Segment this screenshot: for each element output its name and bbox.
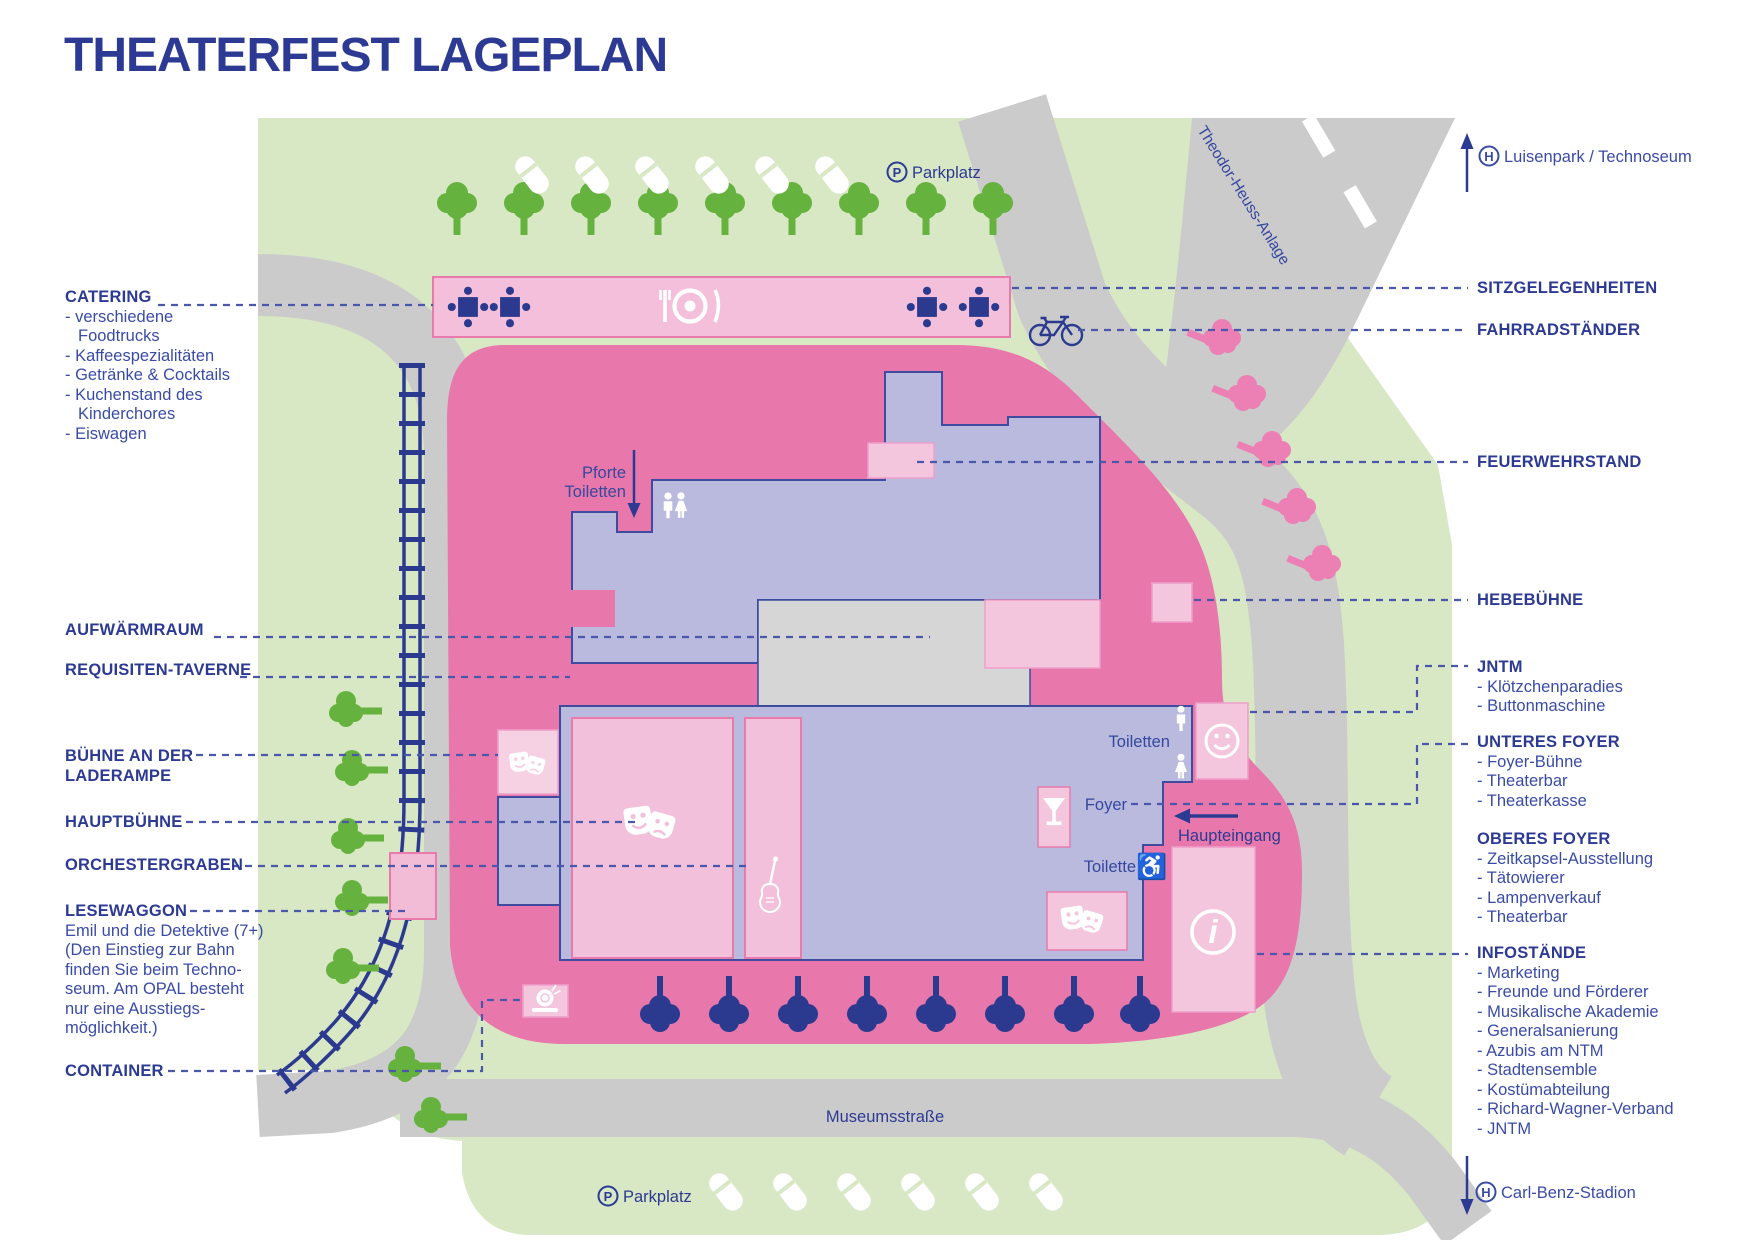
lesewaggon-title: LESEWAGGON: [65, 902, 295, 922]
oberes-foyer-item: - Zeitkapsel-Ausstellung: [1477, 850, 1747, 870]
jntm-title: JNTM: [1477, 658, 1747, 678]
svg-text:P: P: [893, 165, 902, 180]
lesewaggon-line: (Den Einstieg zur Bahn: [65, 941, 295, 961]
box-jntm-smiley: [1196, 703, 1248, 779]
infostaende-item: - Azubis am NTM: [1477, 1042, 1747, 1062]
wheelchair-icon: ♿: [1136, 852, 1167, 881]
toiletten-label: Toiletten: [1109, 733, 1170, 751]
infostaende-item: - Generalsanierung: [1477, 1022, 1747, 1042]
oberes-foyer-item: - Tätowierer: [1477, 869, 1747, 889]
feuerwehrstand-callout: FEUERWEHRSTAND: [1477, 453, 1641, 473]
info-glyph: i: [1208, 913, 1218, 950]
lesewaggon-line: möglichkeit.): [65, 1019, 295, 1039]
hebebuehne-callout: HEBEBÜHNE: [1477, 591, 1583, 611]
h-badge-luisenpark: H: [1480, 147, 1499, 166]
oberes-foyer-title: OBERES FOYER: [1477, 830, 1747, 850]
infostaende-item: - Freunde und Förderer: [1477, 983, 1747, 1003]
fahrradstaender-callout: FAHRRADSTÄNDER: [1477, 321, 1640, 341]
catering-title: CATERING: [65, 288, 241, 308]
toilette-label: Toilette: [1084, 858, 1136, 876]
building-notch: [571, 590, 615, 627]
haupteingang-label: Haupteingang: [1178, 827, 1281, 845]
pforte-label-line2: Toiletten: [565, 483, 626, 501]
infostaende-item: - Musikalische Akademie: [1477, 1003, 1747, 1023]
catering-item: - Getränke & Cocktails: [65, 366, 241, 386]
jntm-item: - Buttonmaschine: [1477, 697, 1747, 717]
unteres-foyer-title: UNTERES FOYER: [1477, 733, 1747, 753]
unteres-foyer-item: - Theaterbar: [1477, 772, 1747, 792]
box-feuerwehrstand: [868, 443, 934, 478]
catering-item: - Eiswagen: [65, 425, 241, 445]
requisiten-taverne-callout: REQUISITEN-TAVERNE: [65, 661, 251, 681]
aufwaermraum-callout: AUFWÄRMRAUM: [65, 621, 204, 641]
parkplatz-north-label: Parkplatz: [912, 164, 981, 182]
luisenpark-arrow-icon: [1461, 133, 1474, 192]
catering-item: - verschiedene Foodtrucks: [65, 308, 241, 347]
room-highlight: [985, 600, 1100, 668]
jntm-item: - Klötzchenparadies: [1477, 678, 1747, 698]
container-callout: CONTAINER: [65, 1062, 164, 1082]
parkplatz-south-label: Parkplatz: [623, 1188, 692, 1206]
buehne-laderampe-callout: BÜHNE AN DER LADERAMPE: [65, 747, 215, 786]
oberes-foyer-item: - Theaterbar: [1477, 908, 1747, 928]
orchestergraben-callout: ORCHESTERGRABEN: [65, 856, 243, 876]
sitzgelegenheiten-callout: SITZGELEGENHEITEN: [1477, 279, 1657, 299]
unteres-foyer-item: - Theaterkasse: [1477, 792, 1747, 812]
svg-text:P: P: [604, 1189, 613, 1204]
infostaende-item: - Stadtensemble: [1477, 1061, 1747, 1081]
lesewaggon-callout: LESEWAGGON Emil und die Detektive (7+) (…: [65, 902, 295, 1039]
catering-callout: CATERING - verschiedene Foodtrucks - Kaf…: [65, 288, 241, 444]
infostaende-item: - Richard-Wagner-Verband: [1477, 1100, 1747, 1120]
jntm-callout: JNTM - Klötzchenparadies - Buttonmaschin…: [1477, 658, 1747, 717]
page-title: THEATERFEST LAGEPLAN: [64, 28, 667, 83]
building-annex: [498, 797, 560, 905]
lesewaggon-line: seum. Am OPAL besteht: [65, 980, 295, 1000]
svg-text:H: H: [1484, 149, 1493, 164]
infostaende-callout: INFOSTÄNDE - Marketing - Freunde und För…: [1477, 944, 1747, 1139]
infostaende-item: - Kostümabteilung: [1477, 1081, 1747, 1101]
catering-item: - Kuchenstand des Kinderchores: [65, 386, 241, 425]
museumsstrasse-label: Museumsstraße: [826, 1108, 944, 1126]
room-hauptbuehne: [572, 718, 733, 958]
oberes-foyer-item: - Lampenverkauf: [1477, 889, 1747, 909]
luisenpark-label: Luisenpark / Technoseum: [1504, 148, 1692, 166]
infostaende-title: INFOSTÄNDE: [1477, 944, 1747, 964]
lesewaggon-line: Emil und die Detektive (7+): [65, 922, 295, 942]
lesewaggon-line: finden Sie beim Techno-: [65, 961, 295, 981]
carl-benz-label: Carl-Benz-Stadion: [1501, 1184, 1636, 1202]
catering-item: - Kaffeespezialitäten: [65, 347, 241, 367]
catering-bar: [433, 277, 1010, 337]
infostaende-item: - JNTM: [1477, 1120, 1747, 1140]
hauptbuehne-callout: HAUPTBÜHNE: [65, 813, 183, 833]
unteres-foyer-item: - Foyer-Bühne: [1477, 753, 1747, 773]
foyer-label: Foyer: [1085, 796, 1128, 814]
room-orchestergraben: [745, 718, 801, 958]
infostaende-item: - Marketing: [1477, 964, 1747, 984]
lesewaggon: [390, 853, 436, 919]
box-hebebuehne: [1152, 583, 1192, 622]
oberes-foyer-callout: OBERES FOYER - Zeitkapsel-Ausstellung - …: [1477, 830, 1747, 928]
unteres-foyer-callout: UNTERES FOYER - Foyer-Bühne - Theaterbar…: [1477, 733, 1747, 811]
h-badge-carl-benz: H: [1477, 1183, 1496, 1202]
svg-text:H: H: [1481, 1185, 1490, 1200]
pforte-label-line1: Pforte: [582, 464, 626, 482]
lesewaggon-line: nur eine Ausstiegs-: [65, 1000, 295, 1020]
